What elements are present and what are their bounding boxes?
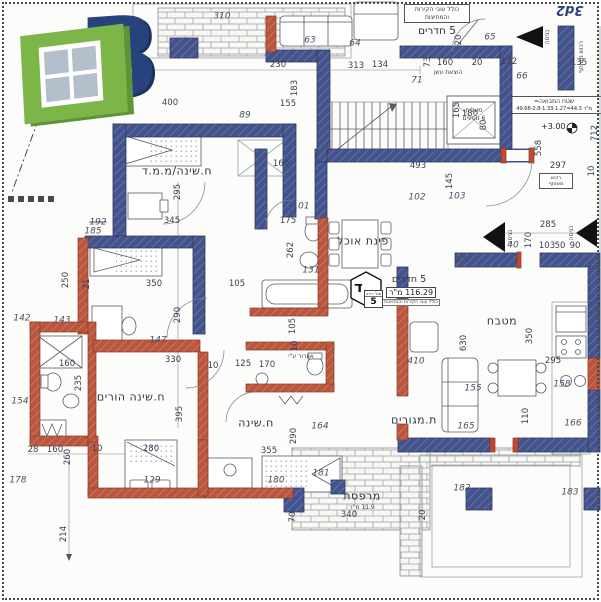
dim-label: 158 — [553, 381, 570, 390]
dim-label: 214 — [60, 526, 69, 542]
dim-label: 164 — [311, 423, 328, 432]
dim-label: 180 — [267, 477, 284, 486]
dim-label: 160 — [437, 59, 453, 68]
dim-label: 28 — [28, 446, 39, 455]
dim-label: 10 — [588, 166, 597, 177]
badge-unit-number: 5 — [365, 297, 382, 307]
dim-label: 63 — [304, 37, 315, 46]
dim-label: 134 — [372, 61, 388, 70]
dim-label: 630 — [460, 335, 469, 351]
dim-label: 102 — [408, 194, 425, 203]
elevator-label: מעלית 6 נוסעים — [452, 107, 496, 123]
dim-label: 181 — [312, 470, 329, 479]
dim-label: 160 — [273, 160, 289, 169]
annotation-label: כניסה — [569, 226, 575, 241]
dim-label: 129 — [143, 477, 160, 486]
dim-label: 230 — [270, 61, 286, 70]
dim-label: 70 — [289, 512, 298, 523]
annotation-label: 11.9 מ"ר — [349, 505, 375, 511]
badge-title: 5 חדרים — [382, 274, 436, 285]
dim-label: 172 — [501, 58, 517, 67]
dim-label: 410 — [407, 358, 424, 367]
corner-stamp: 3d2 — [556, 2, 583, 17]
dim-label: 160 — [59, 360, 75, 369]
dim-label: 345 — [164, 217, 180, 226]
dim-label: 50 — [555, 242, 566, 251]
room-label: מרפסת — [343, 491, 380, 502]
dim-label: 66 — [516, 73, 527, 82]
dim-label: 285 — [540, 221, 556, 230]
dim-label: 154 — [11, 398, 28, 407]
dim-label: 21 — [83, 279, 92, 290]
dim-label: 142 — [13, 315, 30, 324]
dim-label: 235 — [75, 375, 84, 391]
elevator-line2: 6 נוסעים — [452, 115, 496, 123]
dim-label: 101 — [292, 203, 309, 212]
dim-label: 183 — [291, 80, 300, 96]
dim-label: 20 — [419, 510, 428, 521]
dim-label: 10 — [291, 341, 300, 352]
dim-label: 125 — [235, 360, 251, 369]
badge-letter: ד — [354, 278, 363, 296]
dim-label: 10 — [208, 362, 219, 371]
badge-area: 116.29 מ"ר — [386, 287, 436, 298]
dim-label: 147 — [149, 337, 166, 346]
dim-label: 105 — [229, 280, 245, 289]
dim-label: 262 — [287, 242, 296, 258]
dim-label: 71 — [411, 77, 422, 86]
dim-label: 90 — [570, 242, 581, 251]
dim-label: 340 — [341, 511, 357, 520]
dim-label: 330 — [165, 356, 181, 365]
dim-label: 65 — [484, 34, 495, 43]
dim-label: 183 — [561, 489, 578, 498]
room-label: ח.שינה — [238, 418, 274, 429]
top-apartment-note: כולל עובי הקירות והמחיצות — [404, 4, 470, 23]
room-label: פינת אוכל — [337, 236, 388, 247]
dim-label: 103 — [539, 242, 555, 251]
dim-label: 105 — [289, 318, 298, 334]
dim-label: 290 — [290, 428, 299, 444]
annotation-label: רכוש משותף — [579, 41, 585, 73]
dim-label: 295 — [174, 184, 183, 200]
dim-label: 182 — [453, 485, 470, 494]
room-label: ח.שינה/מ.מ.ד — [142, 166, 212, 177]
badge-note: כולל עובי הקירות והמחיצות — [382, 299, 440, 306]
dim-label: 350 — [146, 280, 162, 289]
dim-label: 355 — [261, 447, 277, 456]
dim-label: 558 — [535, 140, 544, 156]
dim-label: 185 — [84, 228, 101, 237]
dim-label: 131 — [302, 267, 319, 276]
room-label: ח.שינה הורים — [97, 392, 165, 403]
annotation-label: כניסה — [508, 230, 514, 245]
dim-label: 170 — [259, 361, 275, 370]
elevator-line1: מעלית — [452, 107, 496, 115]
dim-label: 170 — [525, 232, 534, 248]
room-label: ת.מגורים — [391, 415, 437, 426]
dim-label: 73 — [424, 57, 433, 68]
dim-label: 313 — [348, 62, 364, 71]
badge-unit: מס' דירה 5 — [364, 290, 383, 308]
dim-label: 155 — [464, 385, 481, 394]
dim-label: 175 — [280, 217, 296, 226]
dim-label: 350 — [526, 328, 535, 344]
dim-label: 110 — [522, 408, 531, 424]
dim-label: 145 — [446, 173, 455, 189]
dim-label: 127 — [454, 257, 471, 266]
dim-label: 310 — [213, 13, 230, 22]
dim-label: 712 — [591, 125, 600, 141]
dim-label: 155 — [280, 100, 296, 109]
dim-label: 395 — [176, 406, 185, 422]
floor-plan-page: B 3d2 כולל עובי הקירות והמחיצות 5 חדרים … — [0, 0, 601, 602]
top-apartment-title: 5 חדרים — [404, 25, 470, 37]
dim-label: 160 — [47, 446, 63, 455]
dim-label: 260 — [64, 449, 73, 465]
dim-label: 280 — [143, 445, 159, 454]
top-apartment-label: כולל עובי הקירות והמחיצות 5 חדרים — [404, 4, 470, 37]
dim-label: 297 — [550, 162, 566, 171]
dim-label: 89 — [239, 112, 250, 121]
dim-label: 166 — [564, 420, 581, 429]
dim-label: 493 — [410, 162, 426, 171]
annotation-label: אוורור ע"י — [288, 354, 313, 360]
dim-label: 103 — [448, 193, 465, 202]
dim-label: 165 — [457, 423, 474, 432]
annotation-label: הוצאת עשן — [434, 70, 463, 76]
window-icon — [39, 40, 104, 108]
dim-label: 10 — [92, 445, 103, 454]
dim-label: 143 — [53, 317, 70, 326]
level-label: +3.00 — [541, 122, 566, 131]
dim-label: 295 — [545, 357, 561, 366]
dim-label: 290 — [174, 307, 183, 323]
room-label: מטבח — [487, 316, 517, 327]
builder-logo: B — [14, 8, 194, 128]
dim-label: 178 — [9, 477, 26, 486]
dim-label: 250 — [62, 272, 71, 288]
dim-label: 20 — [472, 59, 483, 68]
annotation-label: כניסה — [545, 30, 551, 45]
dim-label: 64 — [349, 40, 360, 49]
